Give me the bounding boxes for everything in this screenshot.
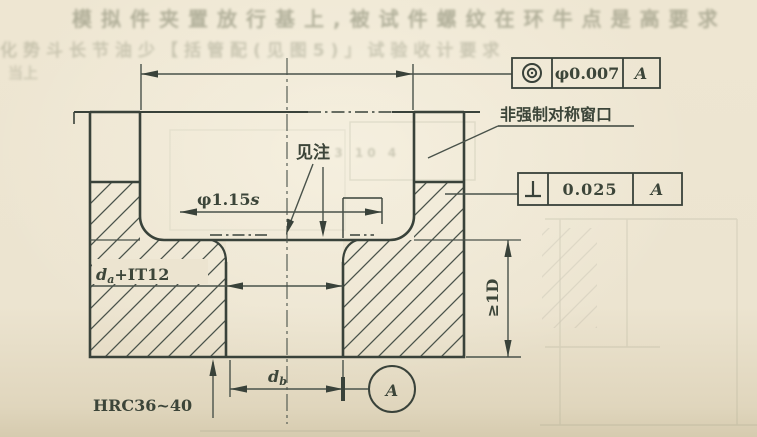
fcf-concentricity: φ0.007 A xyxy=(512,58,660,88)
fcf-perpendicularity: 0.025 A xyxy=(518,173,682,205)
window-note-label: 非强制对称窗口 xyxy=(500,105,612,124)
concentricity-tolerance: φ0.007 xyxy=(555,64,620,83)
technical-drawing-svg: φ0.007 A 非强制对称窗口 0.025 A 见注 φ1.15s da+IT… xyxy=(0,0,757,437)
db-dimension-label: db xyxy=(268,367,287,388)
see-note-label: 见注 xyxy=(296,142,330,163)
depth-dimension-label: ≥1D xyxy=(483,279,502,318)
da-dimension-label: da+IT12 xyxy=(92,259,208,286)
scanned-drawing-page: 模拟件夹置放行基上,被试件螺纹在环牛点是高要求 化势斗长节油少【括管配(见图5)… xyxy=(0,0,757,437)
datum-anchor-bar xyxy=(341,377,345,401)
bore-dimension-label: φ1.15s xyxy=(197,190,259,209)
concentricity-datum: A xyxy=(633,64,647,83)
svg-text:da+IT12: da+IT12 xyxy=(96,265,169,286)
concentricity-icon xyxy=(523,64,541,82)
bore-undercut-grooves xyxy=(212,240,357,262)
hardness-label: HRC36~40 xyxy=(93,396,192,415)
perpendicularity-icon xyxy=(525,181,541,196)
perpendicularity-datum: A xyxy=(649,180,663,199)
datum-letter: A xyxy=(384,381,398,400)
perpendicularity-tolerance: 0.025 xyxy=(562,180,617,199)
